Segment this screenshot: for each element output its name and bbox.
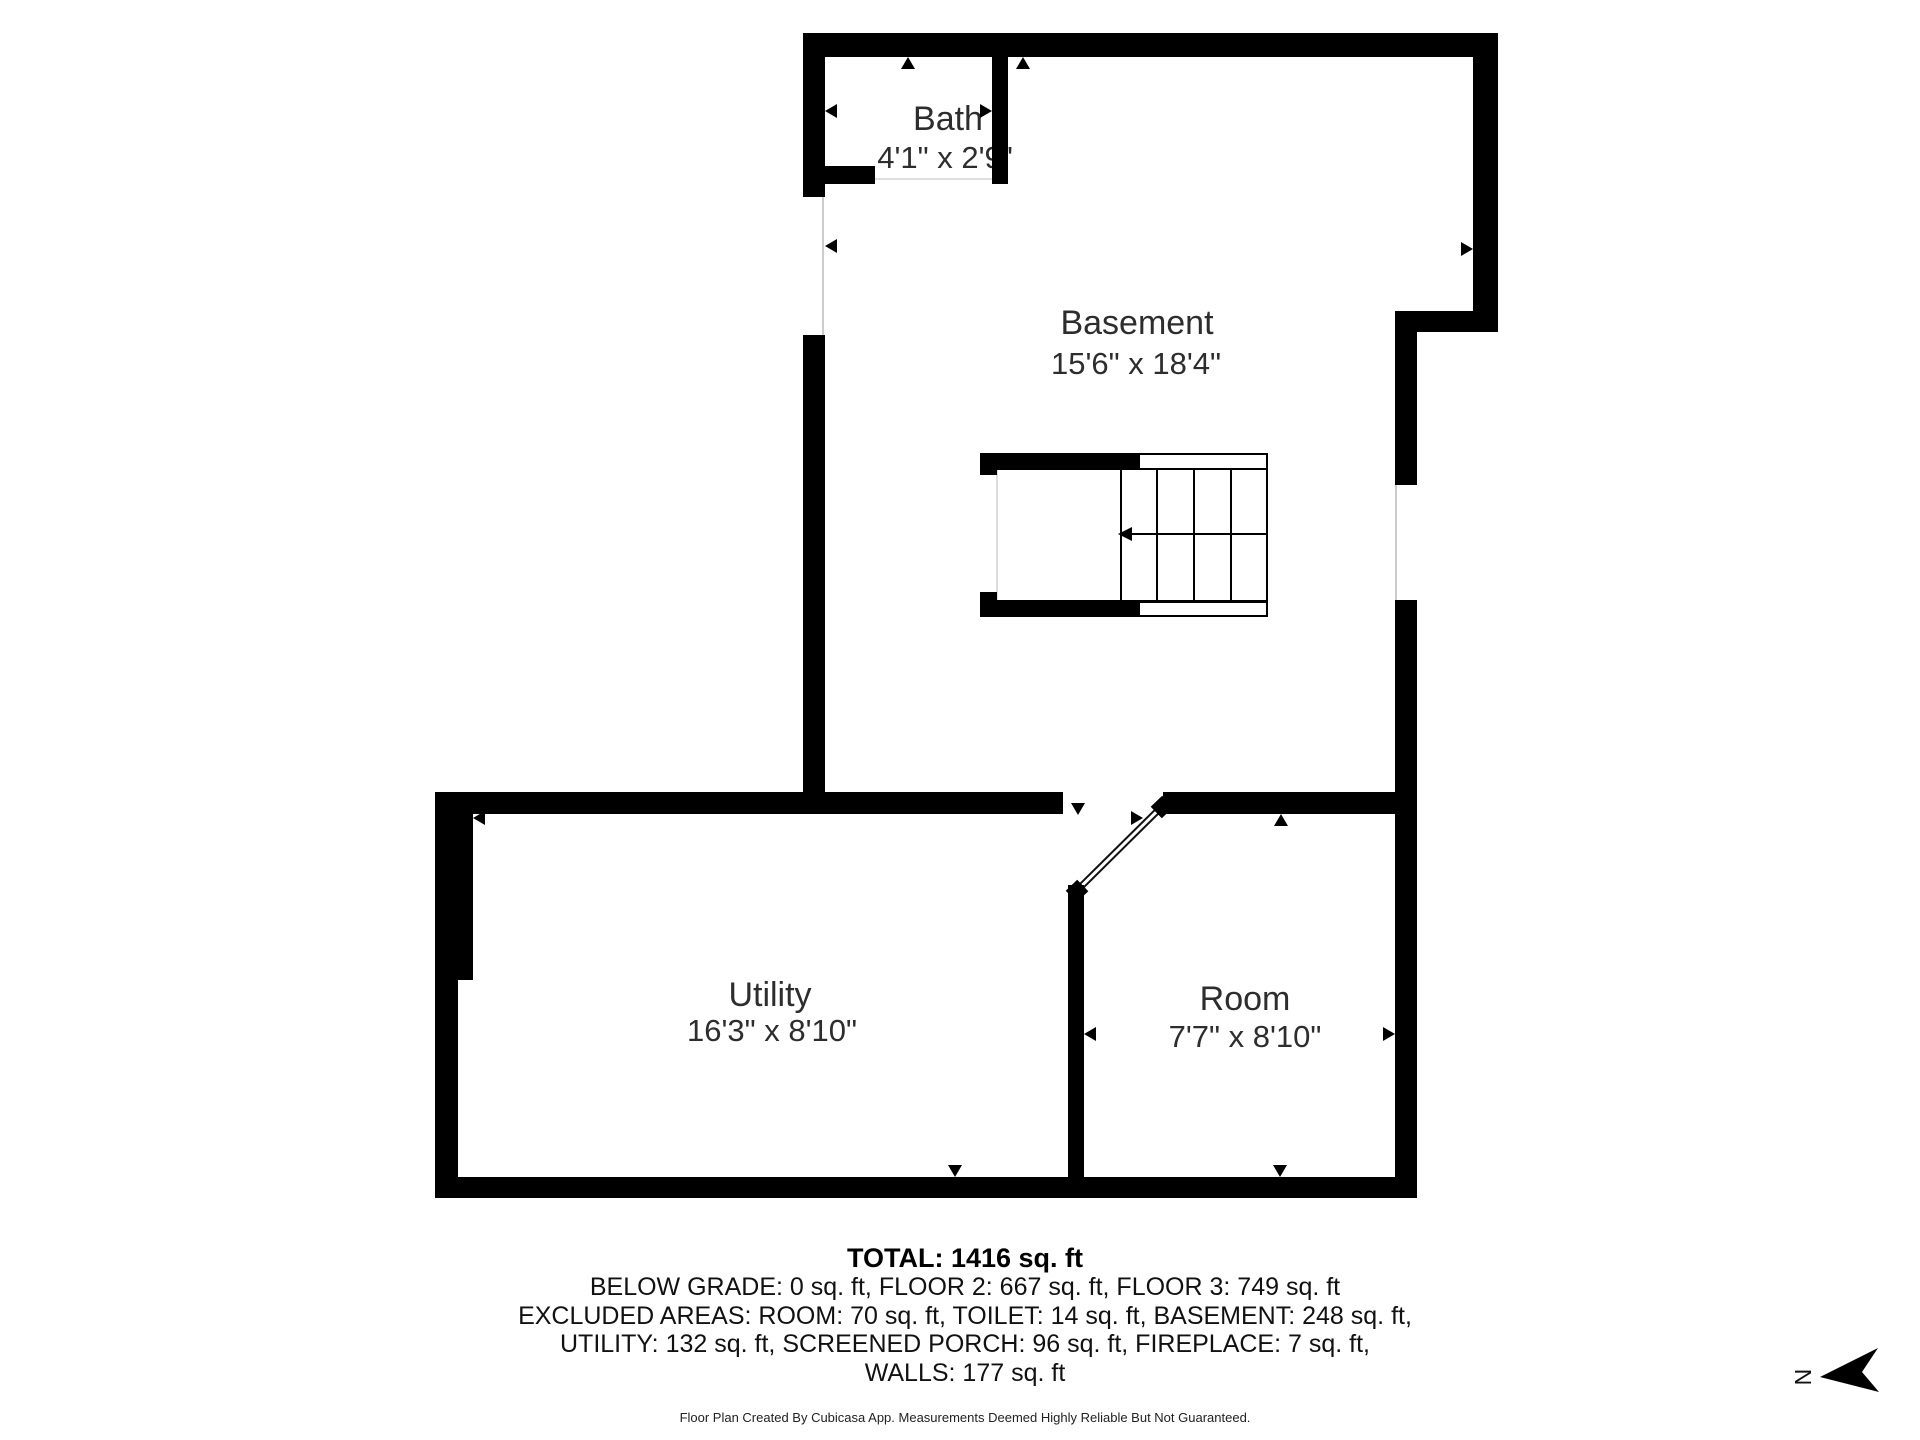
utility-label: Utility — [570, 976, 970, 1015]
stair-right-edge — [1266, 453, 1268, 617]
stair-wall-bottom — [980, 600, 1140, 617]
wall-utility-top — [435, 792, 1063, 814]
room-label: Room — [1045, 980, 1445, 1019]
wall-left-mid — [803, 335, 825, 813]
summary-line-2: EXCLUDED AREAS: ROOM: 70 sq. ft, TOILET:… — [165, 1302, 1765, 1331]
marker-room-top-icon — [1274, 814, 1288, 826]
total-area: TOTAL: 1416 sq. ft — [165, 1244, 1765, 1273]
basement-dims: 15'6" x 18'4" — [916, 346, 1356, 382]
summary-line-3: UTILITY: 132 sq. ft, SCREENED PORCH: 96 … — [165, 1330, 1765, 1359]
marker-doorway-icon — [1071, 803, 1085, 815]
marker-right-outer-wall-icon — [1461, 242, 1473, 256]
window-right-wall — [1395, 485, 1397, 600]
stair-tread-top-edge — [1120, 468, 1268, 470]
marker-utility-bottom-icon — [948, 1165, 962, 1177]
wall-right-inner-lower — [1395, 600, 1417, 1198]
wall-bottom — [435, 1177, 1417, 1198]
marker-door-jamb-icon — [1131, 811, 1143, 825]
north-label: N — [1790, 1364, 1816, 1390]
stair-tread-line-4 — [1230, 470, 1232, 603]
basement-label: Basement — [937, 304, 1337, 343]
stair-tread-line-2 — [1156, 470, 1158, 603]
wall-lower-left-lower — [435, 980, 458, 1198]
summary-line-1: BELOW GRADE: 0 sq. ft, FLOOR 2: 667 sq. … — [165, 1273, 1765, 1302]
floor-plan: Bath 4'1" x 2'9" Basement 15'6" x 18'4" … — [0, 0, 1920, 1440]
wall-right-outer — [1473, 33, 1498, 332]
marker-left-window-icon — [825, 239, 837, 253]
disclaimer-text: Floor Plan Created By Cubicasa App. Meas… — [165, 1410, 1765, 1425]
marker-basement-top-icon — [1016, 57, 1030, 69]
stair-wall-top — [980, 453, 1140, 470]
wall-bath-bottom — [803, 166, 875, 184]
stair-tread-line-3 — [1193, 470, 1195, 603]
bath-door-opening-line — [875, 178, 992, 180]
marker-room-bottom-icon — [1273, 1165, 1287, 1177]
marker-bath-left-icon — [825, 104, 837, 118]
wall-top — [803, 33, 1498, 57]
stair-wall-bottom-nub — [980, 592, 997, 600]
wall-room-top — [1163, 792, 1417, 814]
marker-room-right-icon — [1383, 1027, 1395, 1041]
area-summary: TOTAL: 1416 sq. ft BELOW GRADE: 0 sq. ft… — [165, 1244, 1765, 1387]
wall-right-inner-upper — [1395, 311, 1417, 485]
wall-divider-utility-room — [1068, 885, 1084, 1177]
marker-utility-topleft-icon — [473, 811, 485, 825]
stair-direction-arrow-icon — [1118, 527, 1132, 541]
stair-tread-bottom-edge — [1120, 601, 1268, 603]
stair-wall-top-nub — [980, 470, 997, 475]
wall-lower-left-upper — [435, 792, 473, 980]
bath-dims: 4'1" x 2'9" — [725, 140, 1165, 176]
marker-bath-right-icon — [980, 104, 992, 118]
wall-bath-right — [992, 33, 1008, 184]
window-left-wall — [822, 197, 824, 335]
marker-bath-top-icon — [901, 57, 915, 69]
door-leaf — [1075, 804, 1165, 893]
stair-landing-edge — [996, 470, 998, 600]
utility-dims: 16'3" x 8'10" — [552, 1013, 992, 1049]
summary-line-4: WALLS: 177 sq. ft — [165, 1359, 1765, 1388]
marker-room-left-icon — [1084, 1027, 1096, 1041]
stair-direction-line — [1128, 533, 1268, 535]
